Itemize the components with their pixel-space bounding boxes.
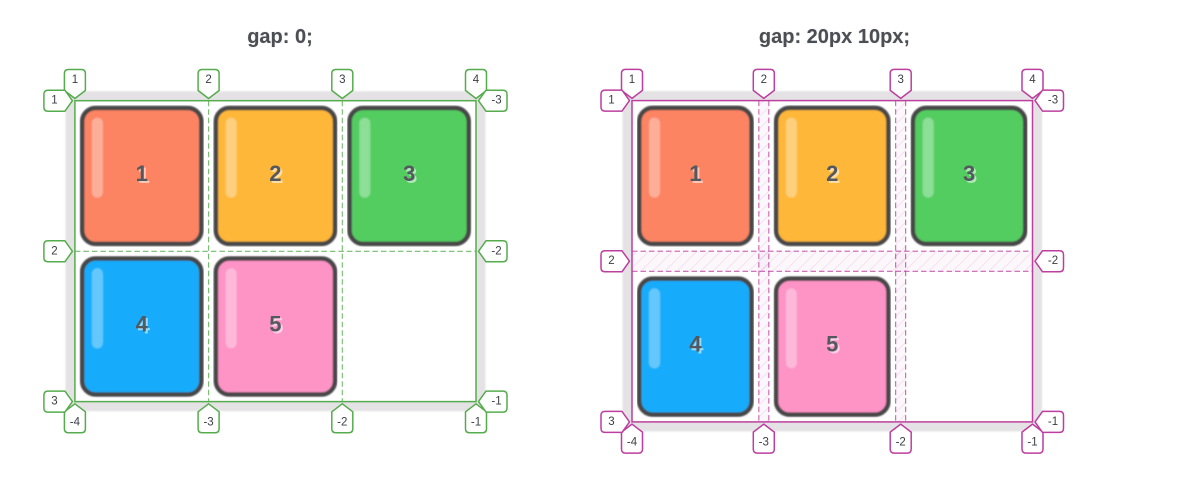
svg-text:3: 3 bbox=[51, 396, 57, 408]
svg-text:3: 3 bbox=[339, 74, 345, 86]
svg-text:-3: -3 bbox=[491, 95, 501, 107]
svg-text:1: 1 bbox=[689, 161, 701, 186]
svg-text:2: 2 bbox=[269, 161, 281, 186]
svg-text:-1: -1 bbox=[471, 416, 481, 428]
svg-text:-2: -2 bbox=[491, 245, 501, 257]
svg-text:-1: -1 bbox=[1048, 416, 1058, 428]
svg-text:4: 4 bbox=[1029, 74, 1036, 86]
svg-text:-3: -3 bbox=[203, 416, 213, 428]
svg-text:4: 4 bbox=[473, 74, 480, 86]
svg-text:1: 1 bbox=[629, 74, 635, 86]
svg-text:3: 3 bbox=[403, 161, 415, 186]
svg-text:1: 1 bbox=[72, 74, 78, 86]
svg-text:-2: -2 bbox=[337, 416, 347, 428]
svg-text:5: 5 bbox=[826, 332, 838, 357]
svg-text:3: 3 bbox=[608, 416, 614, 428]
svg-text:2: 2 bbox=[761, 74, 767, 86]
svg-text:4: 4 bbox=[136, 312, 149, 337]
svg-text:-2: -2 bbox=[1048, 255, 1058, 267]
svg-text:2: 2 bbox=[608, 255, 614, 267]
svg-text:-3: -3 bbox=[1048, 95, 1058, 107]
svg-text:-4: -4 bbox=[70, 416, 81, 428]
svg-text:2: 2 bbox=[205, 74, 211, 86]
svg-text:5: 5 bbox=[269, 312, 281, 337]
svg-text:4: 4 bbox=[689, 332, 702, 357]
svg-text:1: 1 bbox=[51, 95, 57, 107]
svg-text:1: 1 bbox=[608, 95, 614, 107]
svg-text:-3: -3 bbox=[759, 437, 769, 449]
svg-text:2: 2 bbox=[51, 245, 57, 257]
svg-text:-1: -1 bbox=[491, 396, 501, 408]
svg-text:-1: -1 bbox=[1027, 437, 1037, 449]
svg-text:1: 1 bbox=[136, 161, 148, 186]
svg-text:-4: -4 bbox=[627, 437, 638, 449]
svg-text:-2: -2 bbox=[896, 437, 906, 449]
svg-text:3: 3 bbox=[963, 161, 975, 186]
svg-text:2: 2 bbox=[826, 161, 838, 186]
svg-text:3: 3 bbox=[897, 74, 903, 86]
